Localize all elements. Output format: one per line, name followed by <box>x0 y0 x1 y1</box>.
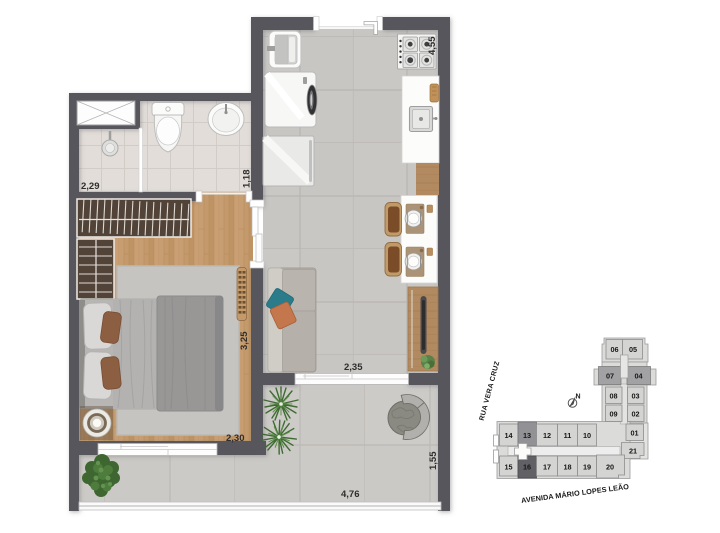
svg-text:1,55: 1,55 <box>428 451 439 470</box>
svg-text:2,35: 2,35 <box>344 362 363 373</box>
svg-text:RUA VERA CRUZ: RUA VERA CRUZ <box>479 360 502 421</box>
svg-text:10: 10 <box>583 431 591 440</box>
svg-text:06: 06 <box>610 345 618 354</box>
svg-text:09: 09 <box>609 410 617 419</box>
svg-text:13: 13 <box>523 431 531 440</box>
svg-text:14: 14 <box>504 431 513 440</box>
svg-text:21: 21 <box>629 447 637 456</box>
svg-text:17: 17 <box>543 463 551 472</box>
svg-text:18: 18 <box>563 463 571 472</box>
svg-text:11: 11 <box>564 431 572 440</box>
svg-text:16: 16 <box>523 463 531 472</box>
svg-text:03: 03 <box>631 392 639 401</box>
svg-text:1,18: 1,18 <box>242 170 253 189</box>
svg-text:3,25: 3,25 <box>239 331 250 350</box>
svg-text:4,76: 4,76 <box>341 489 360 500</box>
svg-text:19: 19 <box>583 463 591 472</box>
svg-text:2,29: 2,29 <box>81 181 100 192</box>
svg-text:AVENIDA MÁRIO LOPES LEÃO: AVENIDA MÁRIO LOPES LEÃO <box>521 482 630 505</box>
svg-text:12: 12 <box>543 431 551 440</box>
svg-text:04: 04 <box>634 372 643 381</box>
svg-text:20: 20 <box>606 463 614 472</box>
svg-text:N: N <box>576 394 581 401</box>
svg-text:2,30: 2,30 <box>226 433 245 444</box>
svg-text:01: 01 <box>630 429 638 438</box>
svg-text:02: 02 <box>631 410 639 419</box>
svg-text:08: 08 <box>609 392 617 401</box>
svg-text:05: 05 <box>629 345 637 354</box>
svg-text:07: 07 <box>606 372 614 381</box>
svg-text:4,55: 4,55 <box>427 36 438 55</box>
svg-text:15: 15 <box>504 463 512 472</box>
